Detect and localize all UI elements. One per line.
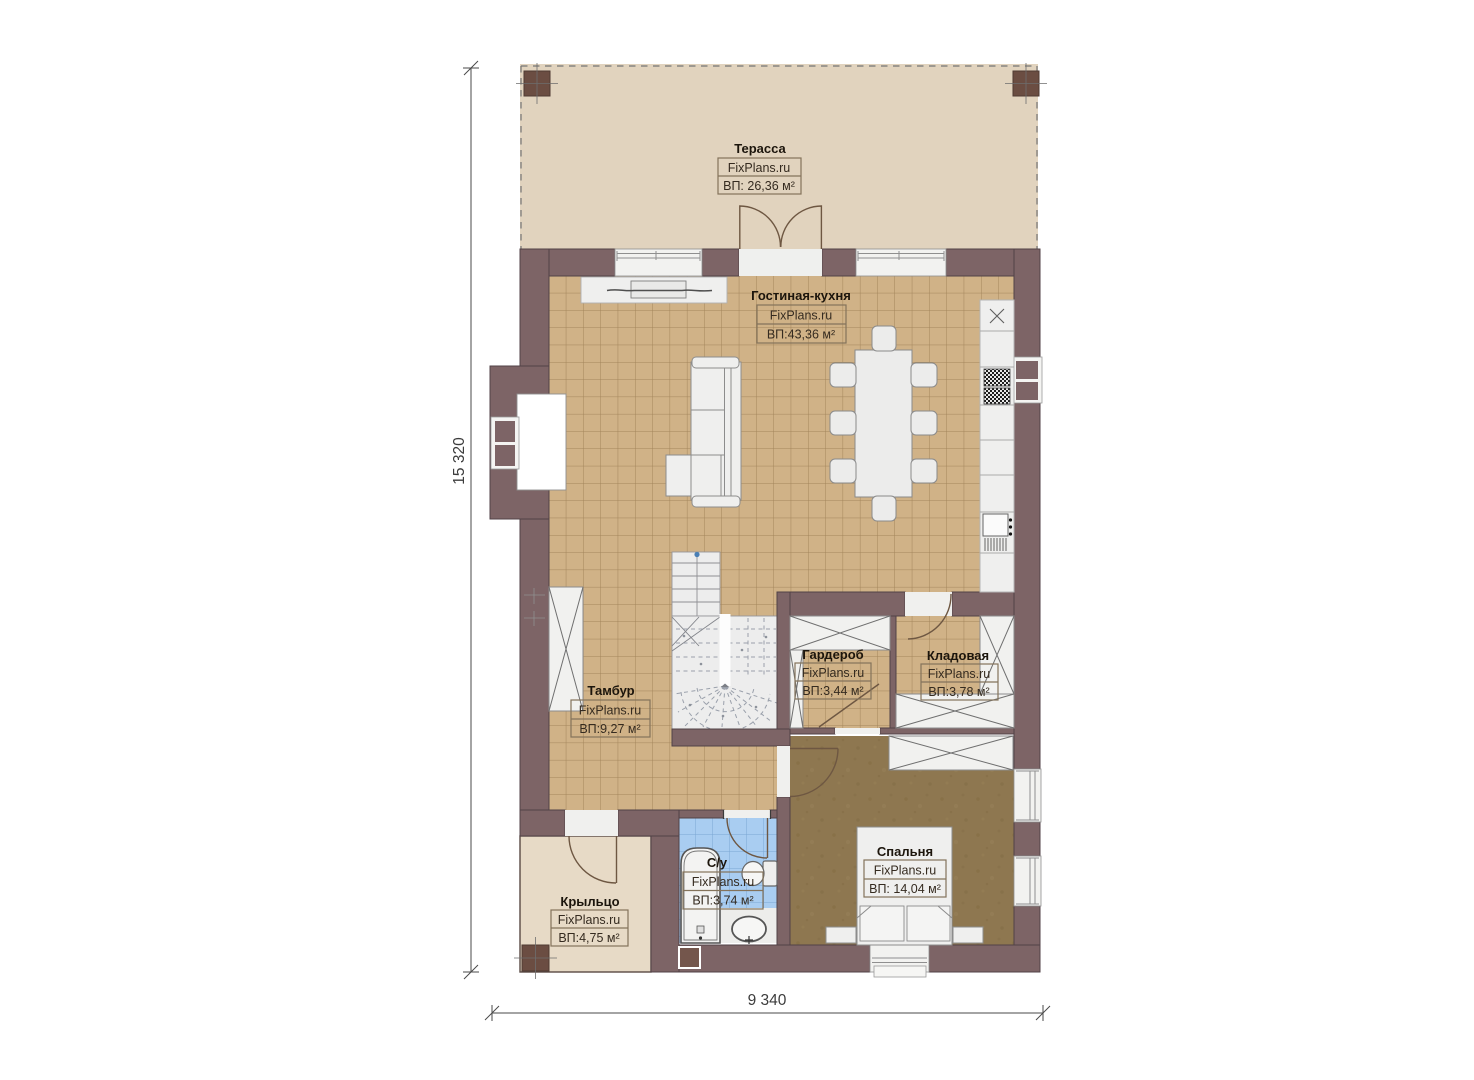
svg-text:Кладовая: Кладовая — [927, 648, 989, 663]
svg-text:Тамбур: Тамбур — [587, 683, 634, 698]
svg-text:ВП:43,36 м²: ВП:43,36 м² — [767, 328, 835, 342]
svg-text:ВП:3,44 м²: ВП:3,44 м² — [802, 684, 863, 698]
svg-text:FixPlans.ru: FixPlans.ru — [579, 704, 642, 718]
svg-text:9 340: 9 340 — [748, 992, 787, 1009]
svg-text:FixPlans.ru: FixPlans.ru — [770, 309, 833, 323]
svg-text:С/у: С/у — [707, 855, 728, 870]
svg-text:ВП:3,78 м²: ВП:3,78 м² — [928, 685, 989, 699]
svg-text:Гардероб: Гардероб — [802, 647, 863, 662]
svg-text:ВП: 14,04 м²: ВП: 14,04 м² — [869, 882, 941, 896]
svg-text:15 320: 15 320 — [451, 437, 468, 485]
svg-text:ВП:9,27 м²: ВП:9,27 м² — [579, 722, 640, 736]
svg-text:Гостиная-кухня: Гостиная-кухня — [751, 288, 851, 303]
svg-text:FixPlans.ru: FixPlans.ru — [728, 161, 791, 175]
svg-text:ВП:4,75 м²: ВП:4,75 м² — [558, 931, 619, 945]
svg-text:FixPlans.ru: FixPlans.ru — [928, 667, 991, 681]
svg-text:Терасса: Терасса — [734, 141, 786, 156]
svg-text:ВП: 26,36 м²: ВП: 26,36 м² — [723, 179, 795, 193]
svg-text:Спальня: Спальня — [877, 844, 933, 859]
svg-text:Крыльцо: Крыльцо — [560, 894, 619, 909]
svg-text:FixPlans.ru: FixPlans.ru — [802, 666, 865, 680]
svg-text:FixPlans.ru: FixPlans.ru — [558, 913, 621, 927]
svg-text:FixPlans.ru: FixPlans.ru — [692, 875, 755, 889]
svg-text:ВП:3,74 м²: ВП:3,74 м² — [692, 894, 753, 908]
svg-text:FixPlans.ru: FixPlans.ru — [874, 864, 937, 878]
